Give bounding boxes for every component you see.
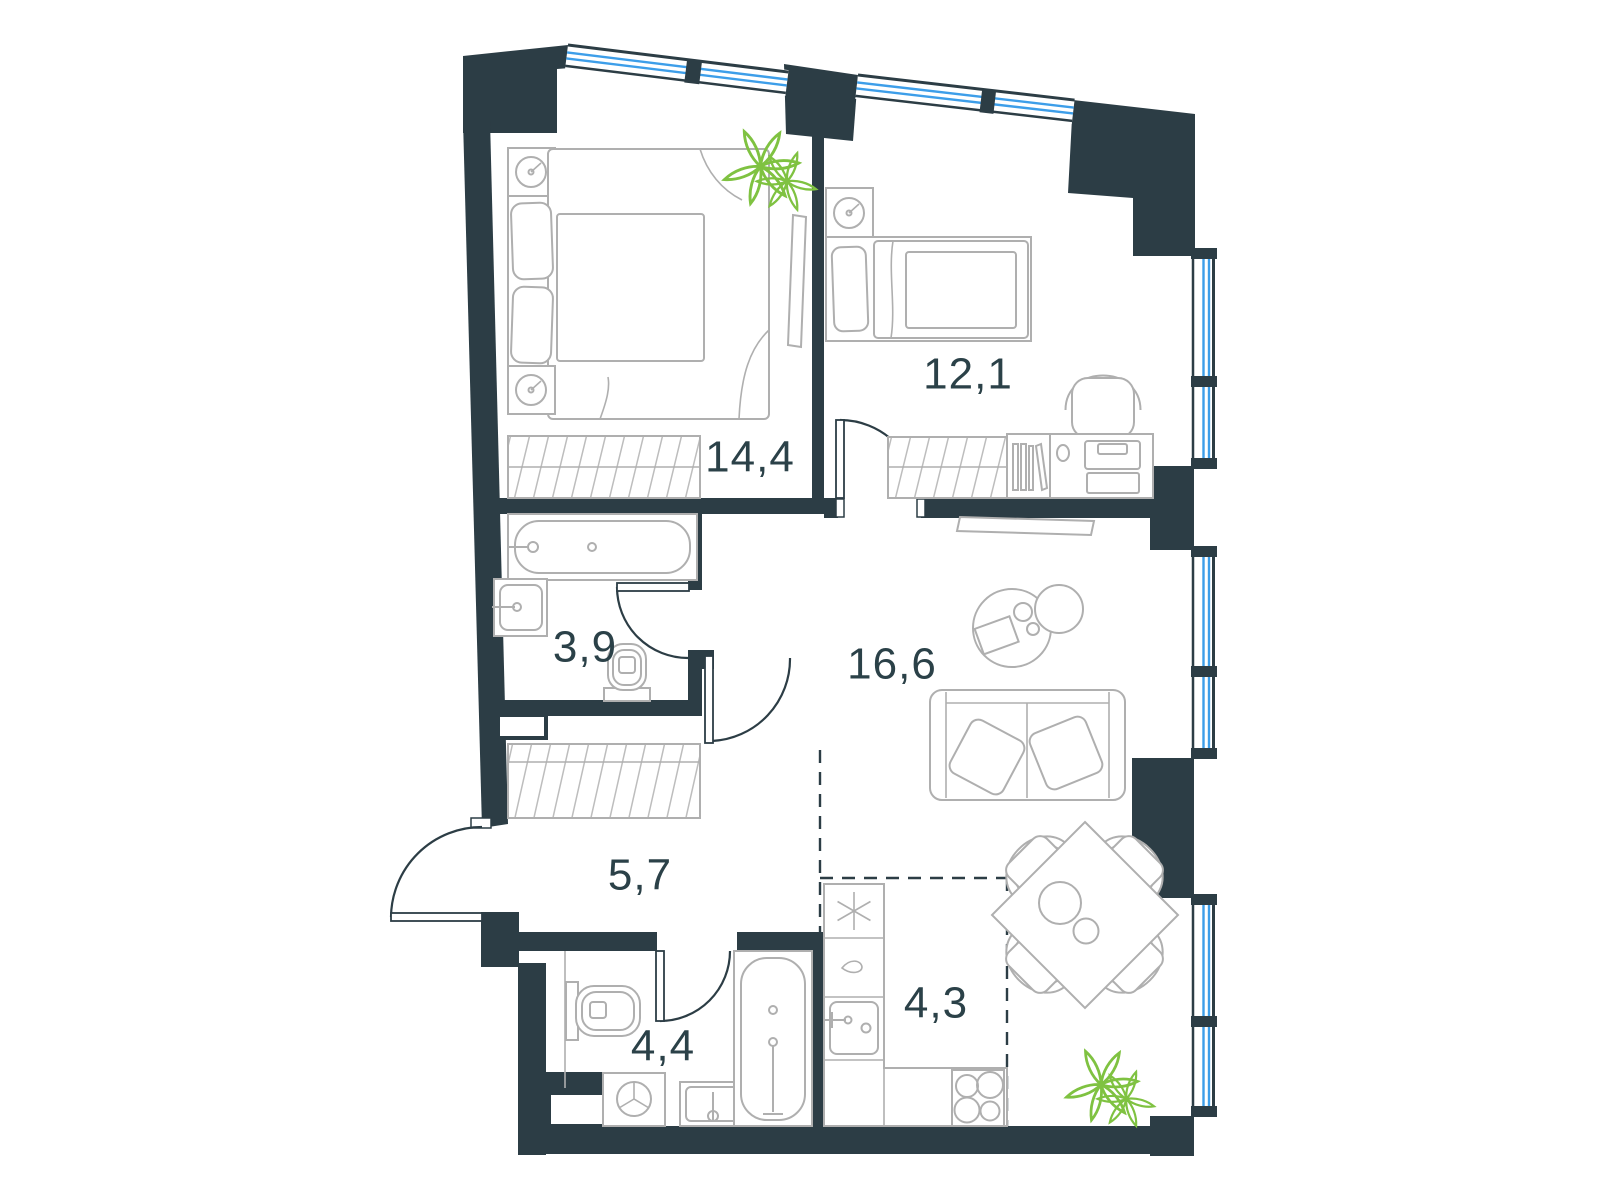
window-right-bedroom-secondary: [1191, 248, 1217, 469]
living-room-furniture: [930, 517, 1125, 800]
bathtub: [508, 514, 697, 580]
wall-niche-small: [500, 717, 544, 736]
bathroom-small-fixtures: [492, 514, 697, 701]
desk-chair: [1070, 378, 1136, 438]
wardrobe: [495, 742, 703, 822]
window-right-living: [1191, 546, 1217, 759]
entrance-door: [391, 818, 491, 921]
sofa: [930, 690, 1125, 800]
window-right-kitchen: [1191, 894, 1217, 1117]
hallway-furniture: [495, 742, 703, 822]
tv-bedroom: [788, 215, 806, 347]
sink: [492, 579, 547, 636]
door-bathroom-main: [656, 951, 730, 1021]
area-label-bedroom-secondary: 12,1: [923, 350, 1013, 399]
nightstand: [508, 366, 555, 414]
area-label-bathroom-small: 3,9: [553, 623, 617, 672]
area-label-kitchen: 4,3: [904, 979, 968, 1028]
tv-living: [957, 517, 1094, 535]
plant-kitchen-icon: [1058, 1042, 1165, 1138]
area-label-bathroom-main: 4,4: [631, 1022, 695, 1071]
desk: [1050, 434, 1153, 498]
bathtub: [734, 951, 812, 1126]
door-living-room: [705, 656, 790, 743]
washing-machine: [603, 1073, 665, 1126]
coffee-tables: [973, 585, 1083, 667]
window-band-bedroom-secondary: [855, 73, 1075, 124]
stove: [952, 1070, 1004, 1126]
wardrobe: [495, 434, 701, 500]
floor-plan-canvas: 14,4 12,1 3,9 16,6 5,7 4,4 4,3: [0, 0, 1600, 1200]
bedroom-secondary-furniture: [826, 188, 1153, 500]
dining-set: [992, 822, 1178, 1008]
area-label-bedroom-primary: 14,4: [705, 433, 795, 482]
area-label-hallway: 5,7: [608, 851, 672, 900]
window-band-bedroom-primary: [565, 43, 789, 96]
wardrobe: [876, 435, 1007, 500]
floor-plan-page: 14,4 12,1 3,9 16,6 5,7 4,4 4,3: [0, 0, 1600, 1200]
bookshelf: [1007, 434, 1050, 498]
toilet: [566, 982, 640, 1040]
nightstand: [826, 188, 873, 238]
wall-niche: [551, 1095, 602, 1124]
area-label-living-room: 16,6: [847, 640, 937, 689]
single-bed: [826, 237, 1031, 341]
